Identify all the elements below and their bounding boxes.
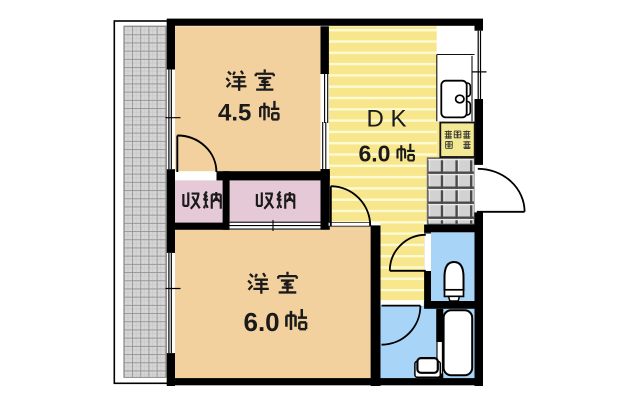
svg-text:6.0: 6.0 (359, 141, 391, 167)
svg-text:6.0: 6.0 (244, 307, 280, 337)
svg-text:4.5: 4.5 (218, 100, 251, 127)
svg-text:D K: D K (367, 105, 407, 132)
